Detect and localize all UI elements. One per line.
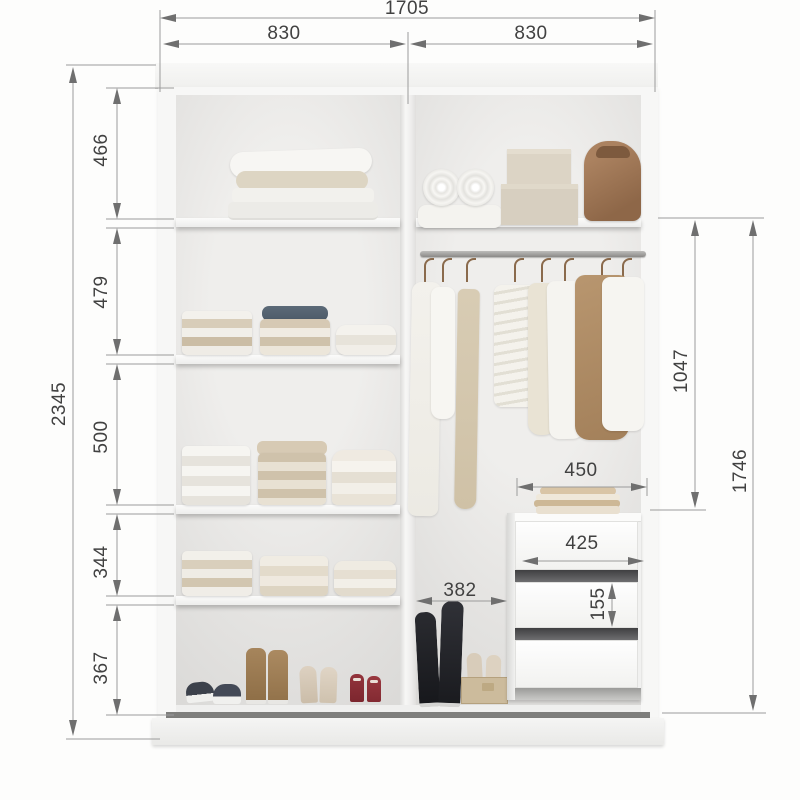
dim-drawer-width: 425 [565, 533, 598, 555]
dim-compartment-1: 466 [91, 133, 113, 166]
dim-compartment-4: 344 [91, 545, 113, 578]
dim-left-section-width: 830 [267, 23, 300, 45]
wardrobe-dimension-diagram: 1705 830 830 2345 466 479 500 344 367 10… [0, 0, 800, 800]
dim-total-height: 2345 [49, 382, 71, 426]
dim-compartment-2: 479 [91, 275, 113, 308]
dim-total-width: 1705 [385, 0, 429, 20]
dim-right-section-width: 830 [514, 23, 547, 45]
dim-right-section-height: 1746 [730, 449, 752, 493]
dim-floor-bay-width: 382 [443, 580, 476, 602]
dim-hanging-height: 1047 [671, 349, 693, 393]
dim-drawer-height: 155 [588, 587, 610, 620]
dimension-lines [0, 0, 800, 800]
dim-compartment-3: 500 [91, 420, 113, 453]
dim-compartment-5: 367 [91, 651, 113, 684]
dim-shelf-over-drawers: 450 [564, 460, 597, 482]
